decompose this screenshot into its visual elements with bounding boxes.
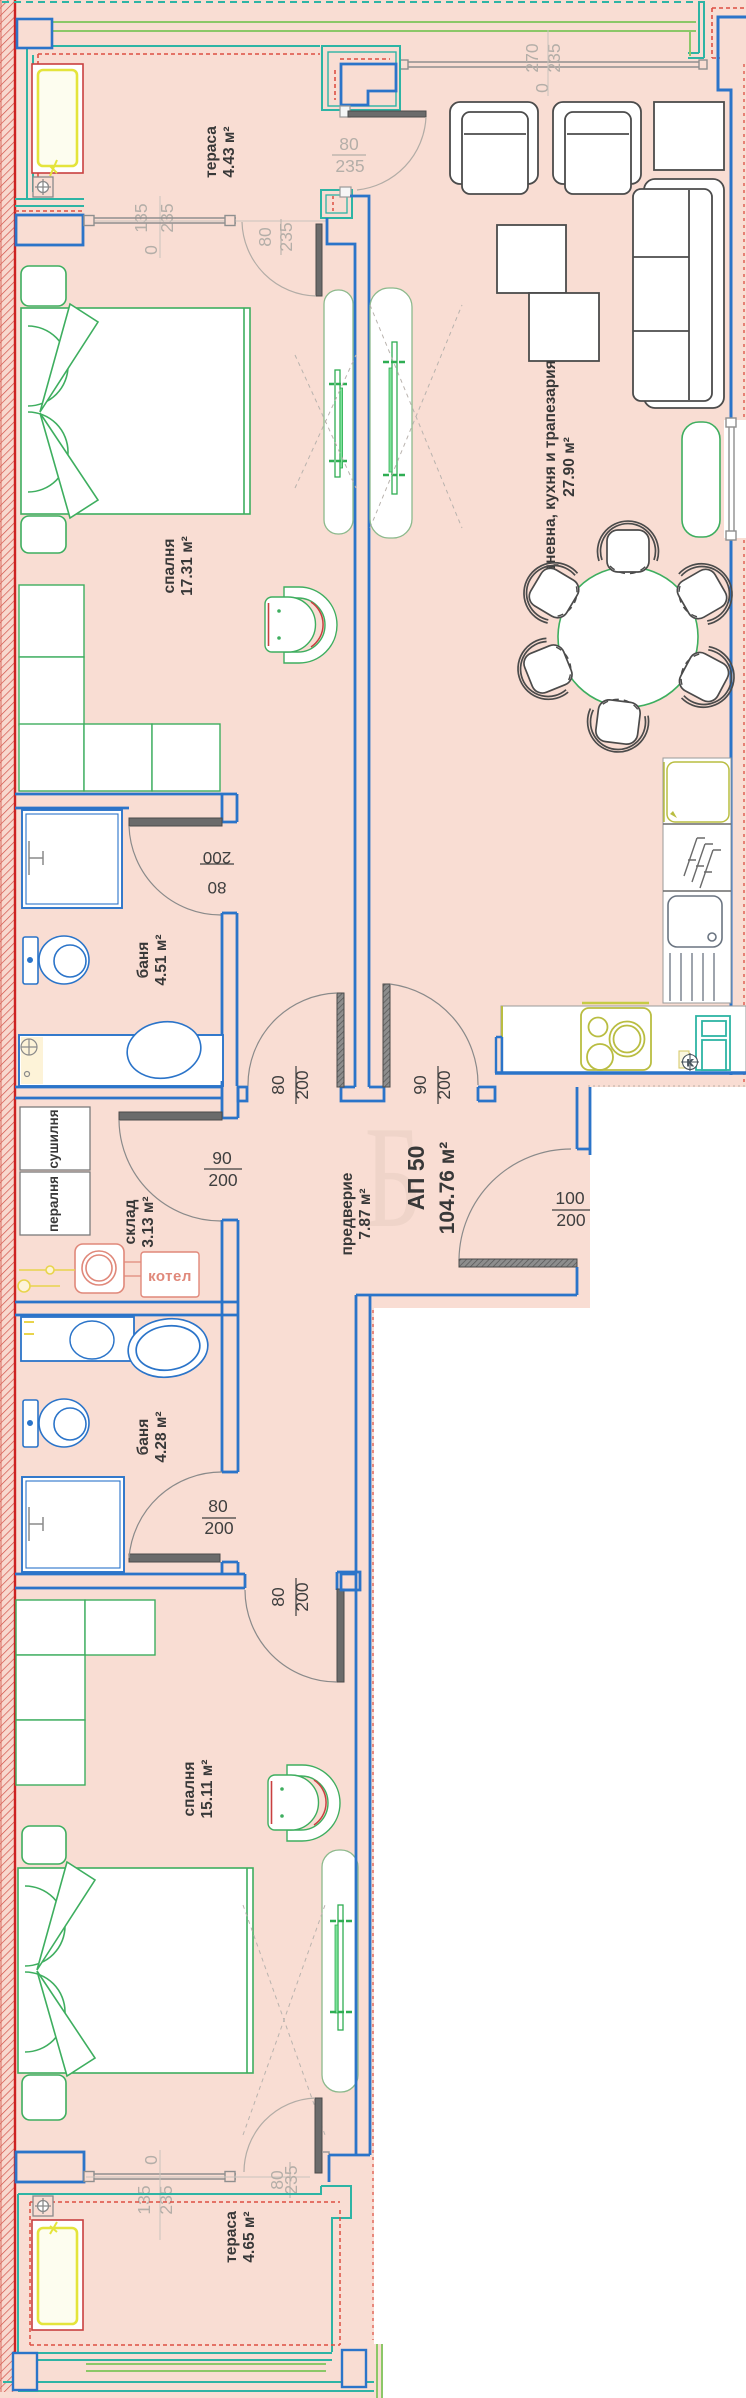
svg-text:3.13 м²: 3.13 м² — [140, 1196, 157, 1247]
svg-text:100: 100 — [555, 1188, 584, 1208]
svg-text:90: 90 — [410, 1075, 430, 1095]
svg-text:дневна, кухня и трапезария: дневна, кухня и трапезария — [542, 360, 559, 574]
svg-text:80: 80 — [339, 134, 359, 154]
svg-text:0: 0 — [141, 2155, 161, 2165]
svg-text:235: 235 — [156, 2185, 176, 2214]
svg-text:4.28 м²: 4.28 м² — [153, 1411, 170, 1462]
svg-text:спалня: спалня — [161, 539, 178, 594]
svg-text:7.87 м²: 7.87 м² — [357, 1188, 374, 1239]
svg-text:80: 80 — [208, 1496, 228, 1516]
svg-text:4.51 м²: 4.51 м² — [153, 934, 170, 985]
svg-text:15.11 м²: 15.11 м² — [199, 1760, 216, 1819]
svg-text:235: 235 — [335, 156, 364, 176]
svg-text:200: 200 — [208, 1170, 237, 1190]
svg-text:80: 80 — [255, 227, 275, 247]
svg-text:104.76 м²: 104.76 м² — [436, 1142, 459, 1235]
svg-text:0: 0 — [532, 83, 552, 93]
svg-text:тераса: тераса — [203, 126, 220, 178]
svg-text:200: 200 — [204, 1518, 233, 1538]
svg-text:200: 200 — [292, 1070, 312, 1099]
svg-text:сушилня: сушилня — [46, 1109, 61, 1168]
svg-text:17.31 м²: 17.31 м² — [179, 536, 196, 596]
svg-text:тераса: тераса — [223, 2211, 240, 2263]
svg-text:80: 80 — [268, 1587, 288, 1607]
svg-text:235: 235 — [281, 2165, 301, 2194]
svg-text:235: 235 — [544, 43, 564, 72]
svg-text:270: 270 — [522, 43, 542, 72]
svg-text:предверие: предверие — [339, 1172, 356, 1255]
svg-text:4.65 м²: 4.65 м² — [241, 2211, 258, 2262]
svg-text:235: 235 — [276, 222, 296, 251]
svg-text:пералня: пералня — [46, 1176, 61, 1232]
svg-text:135: 135 — [134, 2185, 154, 2214]
svg-text:котел: котел — [148, 1268, 192, 1285]
svg-text:склад: склад — [122, 1199, 139, 1244]
svg-text:90: 90 — [212, 1148, 232, 1168]
svg-text:80: 80 — [208, 878, 227, 897]
svg-text:K: K — [687, 1058, 694, 1069]
svg-text:спалня: спалня — [181, 1762, 198, 1817]
svg-text:200: 200 — [292, 1582, 312, 1611]
svg-text:4.43 м²: 4.43 м² — [221, 126, 238, 177]
svg-text:баня: баня — [135, 1419, 152, 1456]
svg-text:80: 80 — [268, 1075, 288, 1095]
svg-text:АП 50: АП 50 — [403, 1146, 429, 1211]
svg-text:200: 200 — [556, 1210, 585, 1230]
svg-text:200: 200 — [434, 1070, 454, 1099]
svg-text:баня: баня — [135, 942, 152, 979]
svg-text:27.90 м²: 27.90 м² — [561, 437, 578, 497]
svg-text:0: 0 — [141, 245, 161, 255]
